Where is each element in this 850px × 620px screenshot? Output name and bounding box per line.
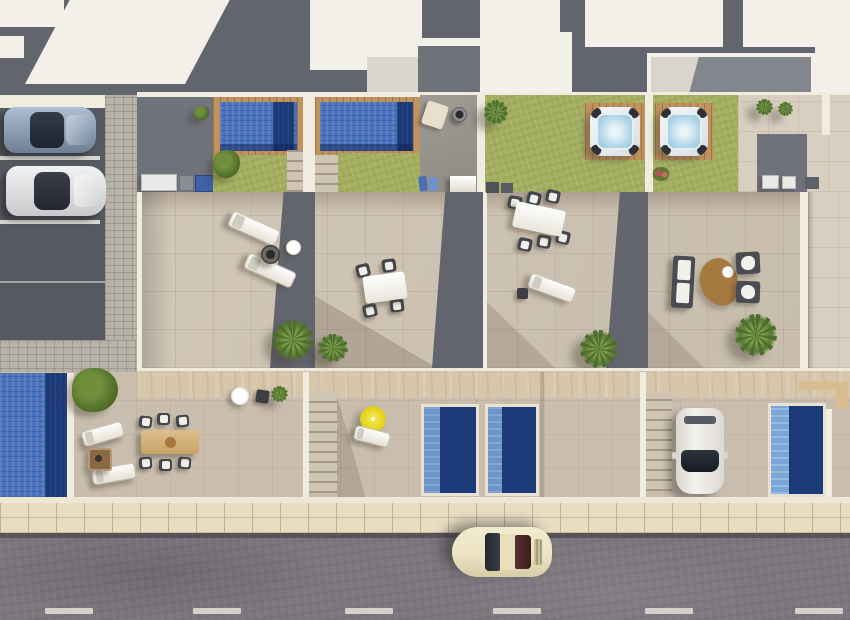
- lawn-2: [338, 153, 420, 193]
- driveway-car: [676, 408, 724, 494]
- lane-dash: [645, 608, 693, 614]
- rooftop-pool-2: [320, 102, 413, 151]
- terrace-top-shadow: [137, 192, 850, 214]
- planter-palm: [271, 386, 288, 402]
- lane-dash: [493, 608, 541, 614]
- fire-table-bowl: [95, 455, 102, 462]
- car-sedan: [6, 166, 106, 216]
- roof-shadow-strip: [560, 0, 585, 32]
- equipment-box: [805, 177, 819, 189]
- privacy-wall: [822, 95, 830, 135]
- deck-stairs-2: [315, 155, 338, 195]
- car-glass: [34, 172, 70, 210]
- privacy-wall: [303, 95, 315, 192]
- palm-tree: [272, 320, 314, 360]
- walkway-top-edge: [137, 368, 850, 371]
- sidewalk: [0, 503, 850, 533]
- ac-unit: [762, 175, 779, 189]
- patio-wall: [826, 409, 832, 503]
- flower-patch: [652, 167, 670, 181]
- parasol-pole: [371, 417, 375, 421]
- street-car: [452, 527, 552, 577]
- deck-stairs-1: [287, 150, 303, 192]
- roof-shadow-strip: [723, 0, 743, 52]
- roof-terrace-shaded: [367, 57, 423, 95]
- armchair-cushion: [741, 285, 755, 299]
- parking-faint-line: [0, 281, 108, 283]
- palm-small: [778, 102, 793, 116]
- white-roof-panel: [0, 36, 24, 58]
- armchair: [736, 281, 761, 304]
- pool-towel: [429, 177, 437, 191]
- passage-wall: [483, 192, 487, 368]
- armchair: [735, 251, 760, 274]
- armchair-cushion: [741, 256, 756, 271]
- stairs-1: [309, 393, 337, 493]
- dining-table-2: [362, 271, 407, 304]
- ac-unit: [486, 182, 499, 193]
- rooftop-pool-1: [220, 102, 297, 151]
- car-rear-window: [515, 535, 531, 569]
- pool-steps: [424, 407, 440, 493]
- hot-tub-2: [660, 107, 708, 156]
- palm-tree: [318, 334, 348, 362]
- fire-table: [88, 448, 112, 471]
- dining-chair: [381, 258, 397, 273]
- wood-edge: [836, 381, 848, 409]
- storage-box: [255, 389, 270, 404]
- terrace-right-wall: [800, 192, 808, 368]
- white-roof-panel: [0, 0, 64, 27]
- white-roof-panel: [815, 47, 850, 95]
- car-hood-highlight: [74, 175, 100, 207]
- pool-steps: [488, 407, 502, 493]
- lane-dash: [193, 608, 241, 614]
- palm-small: [484, 100, 508, 124]
- road: [0, 533, 850, 620]
- round-table: [231, 387, 249, 405]
- terrace-left-shadow: [142, 192, 170, 368]
- white-roof-panel: [480, 0, 572, 95]
- equipment-box: [180, 176, 193, 190]
- dining-chair: [536, 234, 552, 249]
- fire-bowl: [452, 107, 467, 122]
- terrace-right-outside: [808, 192, 850, 368]
- solar-panel: [195, 175, 214, 192]
- gray-roof-block: [418, 46, 480, 95]
- car-hood-highlight: [66, 115, 92, 145]
- wall-shadow: [808, 192, 814, 368]
- pool-b: [485, 404, 539, 496]
- hot-tub-water: [666, 113, 702, 150]
- palm-tree: [735, 314, 777, 356]
- car-hatchback: [4, 107, 96, 153]
- dining-chair: [139, 457, 153, 470]
- lane-dash: [345, 608, 393, 614]
- white-roof-panel: [585, 0, 850, 47]
- dining-chair: [517, 237, 533, 253]
- fire-pit: [261, 245, 280, 264]
- aerial-render-scene: [0, 0, 850, 620]
- road-gutter-shadow: [0, 533, 850, 538]
- wall-shadow: [540, 372, 544, 503]
- car-glass: [681, 450, 719, 472]
- dining-chair: [157, 413, 170, 425]
- side-table: [517, 288, 528, 299]
- pool-towel: [418, 176, 428, 192]
- dining-chair: [178, 456, 192, 469]
- white-roof-edge: [418, 38, 480, 46]
- equipment-box: [141, 174, 177, 191]
- ground-pool-left: [0, 373, 74, 497]
- dining-chair: [389, 298, 404, 312]
- parking-line: [0, 156, 100, 160]
- car-windshield: [485, 533, 500, 571]
- palm-small: [756, 99, 773, 115]
- car-mirror: [723, 452, 728, 459]
- hot-tub-water: [596, 113, 634, 150]
- pool-edge-shadow: [320, 144, 413, 151]
- dining-chair: [138, 415, 152, 428]
- console-table: [450, 176, 476, 193]
- pool-a: [421, 404, 479, 496]
- table-centerpiece: [165, 437, 176, 448]
- car-mirror: [672, 452, 677, 459]
- lane-dash: [45, 608, 93, 614]
- palm-tree: [580, 330, 618, 368]
- pool-c: [768, 403, 826, 497]
- dining-chair: [545, 189, 561, 205]
- car-rear-glass: [684, 416, 716, 424]
- pool-water: [0, 373, 45, 497]
- car-glass: [30, 112, 64, 148]
- car-rear-grille: [534, 539, 542, 565]
- lane-dash: [795, 608, 843, 614]
- pool-steps: [771, 406, 789, 494]
- sofa-cushion: [677, 260, 691, 281]
- ac-unit: [501, 183, 513, 193]
- pool-dark-zone: [45, 373, 67, 497]
- coffee-table: [722, 266, 734, 278]
- dining-chair: [159, 459, 172, 471]
- sofa-cushion: [676, 283, 690, 304]
- hot-tub-1: [590, 107, 640, 156]
- outdoor-sofa: [671, 255, 696, 308]
- car-roof: [500, 534, 515, 570]
- privacy-wall: [645, 95, 653, 195]
- paver-strip: [105, 95, 137, 343]
- ac-unit: [782, 176, 796, 189]
- stairs-2: [646, 393, 672, 491]
- dining-chair: [176, 414, 190, 427]
- paver-area: [0, 340, 137, 376]
- parking-line: [0, 220, 100, 224]
- wooden-dining-table: [141, 430, 199, 454]
- side-table: [286, 240, 301, 255]
